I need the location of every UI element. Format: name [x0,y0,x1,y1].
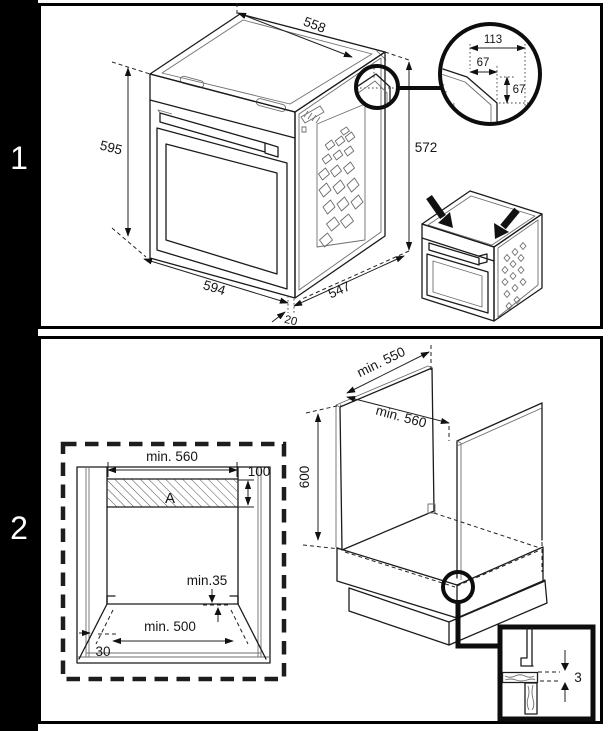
dimension-rear-clearance: min.35 [187,573,228,622]
dim-rear-clearance-label: min.35 [187,573,228,588]
detail-inner-width-label: 67 [477,57,490,69]
dim-top-width-label: 558 [301,14,327,36]
lift-arrow-left [429,197,453,228]
dimension-depth: 547 [294,256,404,306]
dimension-front-height: 595 [98,62,150,257]
dim-gap-label: 3 [574,670,582,685]
dimension-top-width: 558 [237,3,352,57]
dim-side-clearance-label: 30 [95,644,110,659]
dim-front-height-label: 595 [98,138,123,158]
detail-inner-height-label: 67 [513,84,526,96]
dim-bottom-width-label: 594 [201,277,227,298]
dimension-niche-bottom-width: min. 500 [113,619,233,641]
top-slot-right [256,98,287,113]
technical-drawing: 558 595 572 594 547 20 [0,0,610,731]
oven-carrying-illustration [422,191,542,321]
dim-niche-bottom-width-label: min. 500 [144,619,196,634]
dimension-vent-height: 100 [238,464,270,507]
dim-cabinet-width-label: min. 560 [374,403,428,431]
dimension-cabinet-width: min. 560 [347,397,449,441]
dim-cabinet-depth-label: min. 550 [354,344,407,380]
vent-area-label: A [165,490,175,507]
corner-detail-callout: 113 67 67 [352,24,540,124]
small-oven-diamonds [502,243,526,310]
gap-detail-box: 3 [500,627,593,719]
dim-niche-top-width-label: min. 560 [146,449,198,464]
dim-vent-height-label: 100 [248,464,271,479]
dimension-cabinet-height: 600 [297,405,341,549]
detail-source-circle [356,66,398,108]
side-vent-diamonds [317,104,365,247]
dim-door-offset-label: 20 [283,314,298,329]
cabinet-isometric: min. 550 min. 560 600 [297,344,547,646]
dim-cabinet-height-label: 600 [297,466,312,489]
dimension-side-clearance: 30 [79,633,118,659]
oven-installation-diagram: 1 2 [0,0,610,731]
dimension-bottom-width: 594 [144,259,288,303]
lift-arrow-right [494,210,517,239]
detail-total-width-label: 113 [484,34,502,46]
oven-door-glass [166,144,277,274]
dimension-door-offset: 20 [272,296,298,328]
niche-cutout-front-view: min. 560 100 A min.35 min. 500 [63,444,284,679]
dim-depth-label: 547 [326,278,353,301]
dim-rear-height-label: 572 [415,140,438,155]
dimension-niche-top-width: min. 560 [108,449,237,477]
gap-detail-source-circle [443,572,473,602]
